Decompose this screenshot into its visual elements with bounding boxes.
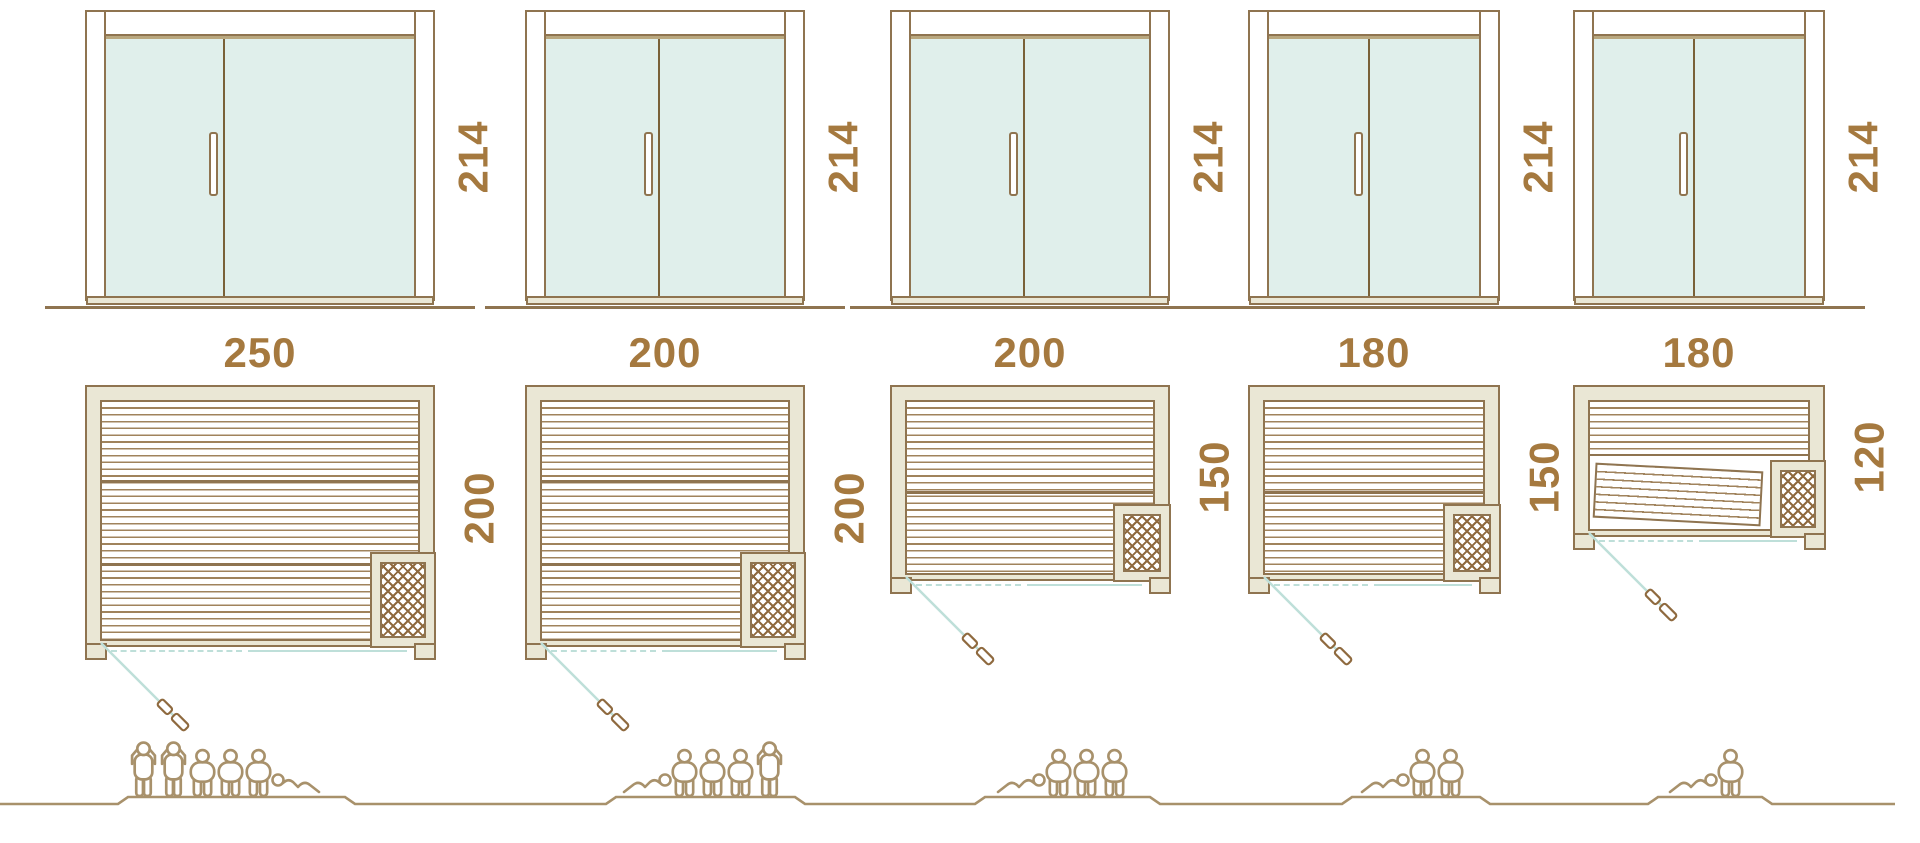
door-leaf-icon [101, 643, 189, 731]
door-sill [526, 296, 804, 305]
front-post-right [1804, 533, 1826, 550]
door-sill [891, 296, 1169, 305]
door-post-right [1149, 10, 1170, 301]
ground-path [0, 797, 1895, 804]
door-handle-icon [1679, 132, 1688, 196]
door-lintel [1573, 10, 1825, 36]
glass-front-line [248, 650, 407, 652]
plan-width-label: 180 [1573, 332, 1825, 374]
glass-divider [1693, 39, 1695, 297]
heater-icon [370, 552, 436, 648]
bench-edge [102, 480, 418, 483]
plan-width-label: 250 [85, 332, 435, 374]
door-lintel [525, 10, 805, 36]
person-sitting-icon [1433, 748, 1468, 797]
person-sitting-icon [1097, 748, 1132, 797]
glass-front [1269, 36, 1479, 297]
heater-mesh [750, 562, 796, 638]
plan-depth-label: 150 [1194, 441, 1236, 514]
door-lintel [1248, 10, 1500, 36]
ground-line [850, 306, 1210, 309]
glass-divider [1023, 39, 1025, 297]
heater-icon [1443, 504, 1501, 582]
bench-boards-top [1590, 402, 1808, 456]
door-lintel [85, 10, 435, 36]
door-post-right [784, 10, 805, 301]
door-post-left [1573, 10, 1594, 301]
sauna-column-2: 214 200 200 [525, 0, 805, 843]
door-elevation: 214 [1573, 8, 1825, 305]
door-leaf-icon [906, 577, 994, 665]
plan-depth-label: 150 [1524, 441, 1566, 514]
sauna-column-5: 214 180 120 [1573, 0, 1825, 843]
capacity-figures [992, 748, 1132, 797]
capacity-figures [125, 741, 325, 797]
door-height-label: 214 [1518, 120, 1560, 193]
ground-line [1208, 306, 1540, 309]
sauna-column-3: 214 200 150 [890, 0, 1170, 843]
door-elevation: 214 [1248, 8, 1500, 305]
door-handle-icon [644, 132, 653, 196]
floor-plan: 200 [525, 385, 805, 647]
door-post-left [890, 10, 911, 301]
plan-width-label: 200 [890, 332, 1170, 374]
ground-line [485, 306, 845, 309]
floor-plan: 150 [1248, 385, 1500, 581]
sauna-size-diagram: 214 250 200 214 [0, 0, 1920, 843]
door-swing-line [1252, 577, 1422, 692]
door-height-label: 214 [823, 120, 865, 193]
glass-divider [1368, 39, 1370, 297]
bench-edge [907, 491, 1153, 494]
floor-plan: 150 [890, 385, 1170, 581]
heater-icon [1113, 504, 1171, 582]
plan-width-label: 200 [525, 332, 805, 374]
door-post-left [1248, 10, 1269, 301]
front-post-right [1479, 577, 1501, 594]
door-height-label: 214 [1843, 120, 1885, 193]
capacity-figures [1356, 748, 1468, 797]
door-leaf-icon [1589, 533, 1677, 621]
door-post-left [525, 10, 546, 301]
door-handle-icon [1354, 132, 1363, 196]
heater-mesh [1123, 514, 1161, 572]
door-post-right [414, 10, 435, 301]
person-sitting-icon [1713, 748, 1748, 797]
door-handle-icon [1009, 132, 1018, 196]
glass-front [1594, 36, 1804, 297]
plan-depth-label: 200 [829, 472, 871, 545]
floor-plan: 200 [85, 385, 435, 647]
door-leaf-icon [1264, 577, 1352, 665]
glass-front [911, 36, 1149, 297]
door-elevation: 214 [85, 8, 435, 305]
door-lintel [890, 10, 1170, 36]
person-lying-icon [618, 770, 674, 796]
bench-edge [542, 480, 788, 483]
door-height-label: 214 [453, 120, 495, 193]
door-post-right [1804, 10, 1825, 301]
capacity-figures [618, 741, 788, 797]
door-sill [86, 296, 434, 305]
heater-mesh [1780, 470, 1816, 528]
floor-plan: 120 [1573, 385, 1825, 537]
door-leaf-icon [541, 643, 629, 731]
door-swing-line [1577, 533, 1747, 648]
person-lying-icon [1356, 770, 1412, 796]
heater-mesh [1453, 514, 1491, 572]
plan-width-label: 180 [1248, 332, 1500, 374]
ground-line [45, 306, 475, 309]
bench-edge [1265, 491, 1483, 494]
door-sill [1574, 296, 1824, 305]
glass-front [106, 36, 414, 297]
capacity-figures [1664, 748, 1748, 797]
sauna-column-4: 214 180 150 [1248, 0, 1500, 843]
door-elevation: 214 [890, 8, 1170, 305]
sauna-column-1: 214 250 200 [85, 0, 435, 843]
glass-divider [223, 39, 225, 297]
door-sill [1249, 296, 1499, 305]
ground-line [1533, 306, 1865, 309]
glass-front [546, 36, 784, 297]
person-standing-icon [751, 741, 788, 797]
door-post-right [1479, 10, 1500, 301]
heater-mesh [380, 562, 426, 638]
door-elevation: 214 [525, 8, 805, 305]
heater-icon [1770, 460, 1826, 538]
glass-divider [658, 39, 660, 297]
person-lying-icon [992, 770, 1048, 796]
heater-icon [740, 552, 806, 648]
front-post-right [784, 643, 806, 660]
person-lying-icon [1664, 770, 1720, 796]
door-height-label: 214 [1188, 120, 1230, 193]
tilted-bench [1593, 463, 1764, 527]
door-handle-icon [209, 132, 218, 196]
front-post-right [1149, 577, 1171, 594]
person-lying-icon [269, 770, 325, 796]
plan-depth-label: 200 [459, 472, 501, 545]
plan-depth-label: 120 [1849, 420, 1891, 493]
door-swing-line [894, 577, 1064, 692]
front-post-right [414, 643, 436, 660]
door-post-left [85, 10, 106, 301]
